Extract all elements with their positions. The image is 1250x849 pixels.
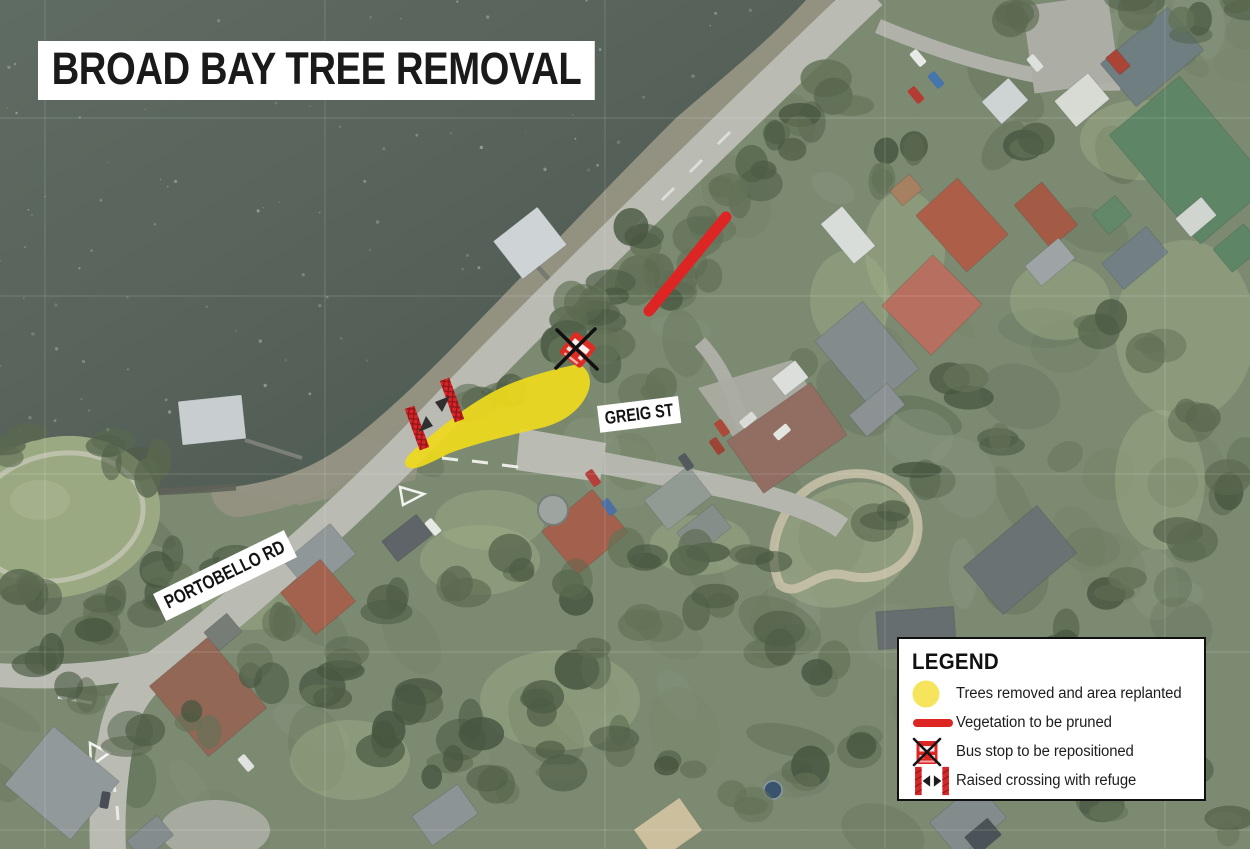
- bus-stop-marker: [556, 329, 597, 369]
- legend-title: LEGEND: [912, 649, 1176, 675]
- raised-crossing-icon: [912, 765, 952, 797]
- legend-item-label: Vegetation to be pruned: [956, 714, 1112, 732]
- legend-item-raised-crossing: Raised crossing with refuge: [912, 766, 1196, 795]
- legend-item-label: Raised crossing with refuge: [956, 772, 1136, 790]
- legend-item-trees-removed: Trees removed and area replanted: [912, 679, 1196, 708]
- map-figure: BROAD BAY TREE REMOVAL PORTOBELLO RD GRE…: [0, 0, 1250, 849]
- vegetation-prune-icon: [912, 718, 954, 728]
- tree-removal-area-icon: [912, 680, 940, 708]
- greig-label-text: GREIG ST: [604, 401, 674, 427]
- legend-item-label: Trees removed and area replanted: [956, 685, 1182, 703]
- map-title-text: BROAD BAY TREE REMOVAL: [52, 43, 582, 94]
- legend-item-bus-stop: Bus stop to be repositioned: [912, 737, 1196, 766]
- legend-item-vegetation-pruned: Vegetation to be pruned: [912, 708, 1196, 737]
- map-title: BROAD BAY TREE REMOVAL: [38, 41, 595, 100]
- legend-item-label: Bus stop to be repositioned: [956, 743, 1134, 761]
- legend-panel: LEGEND Trees removed and area replanted …: [897, 637, 1206, 801]
- bus-stop-icon: [912, 737, 942, 767]
